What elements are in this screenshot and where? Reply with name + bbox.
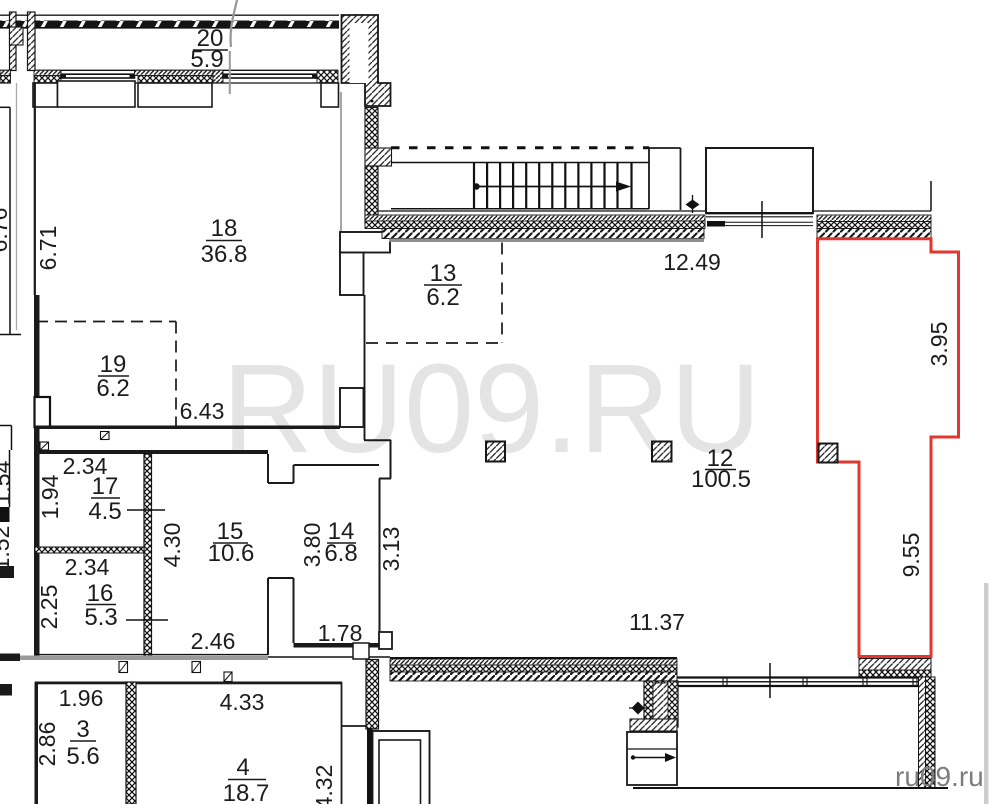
svg-text:6.2: 6.2 [426,284,459,311]
svg-text:18: 18 [211,215,238,242]
svg-text:4.5: 4.5 [88,498,121,525]
svg-text:12.49: 12.49 [663,249,721,275]
svg-text:5.6: 5.6 [66,743,99,770]
svg-text:2.34: 2.34 [65,554,110,580]
svg-text:1.94: 1.94 [37,474,63,519]
svg-text:6.2: 6.2 [96,375,129,402]
svg-text:16: 16 [87,580,114,607]
svg-text:3.13: 3.13 [378,527,404,572]
svg-text:9.55: 9.55 [898,533,924,578]
svg-text:6.76: 6.76 [0,208,12,253]
svg-text:1.78: 1.78 [318,620,363,646]
svg-text:4.32: 4.32 [311,765,337,804]
svg-text:6.71: 6.71 [35,226,61,271]
svg-text:2.46: 2.46 [191,628,236,654]
svg-text:5.3: 5.3 [84,604,117,631]
svg-text:4.33: 4.33 [220,689,265,715]
svg-text:1.96: 1.96 [59,685,104,711]
svg-text:4.30: 4.30 [159,523,185,568]
svg-text:10.6: 10.6 [208,540,255,567]
svg-text:2.86: 2.86 [34,722,60,767]
svg-text:6.8: 6.8 [324,540,357,567]
svg-text:17: 17 [92,473,119,500]
svg-text:3: 3 [76,716,89,743]
svg-text:ru09.ru: ru09.ru [895,761,984,792]
svg-text:19: 19 [100,351,127,378]
svg-text:3.95: 3.95 [926,322,952,367]
svg-text:3.80: 3.80 [299,523,325,568]
svg-text:18.7: 18.7 [223,780,270,804]
svg-text:100.5: 100.5 [691,466,751,493]
svg-text:36.8: 36.8 [201,241,248,268]
svg-text:6.43: 6.43 [180,398,225,424]
svg-text:2.25: 2.25 [36,585,62,630]
svg-text:5.9: 5.9 [190,46,223,73]
svg-text:11.37: 11.37 [629,609,685,635]
svg-text:1.54: 1.54 [0,460,15,505]
svg-text:4: 4 [236,754,249,781]
svg-text:1.52: 1.52 [0,526,14,571]
svg-text:13: 13 [430,260,457,287]
